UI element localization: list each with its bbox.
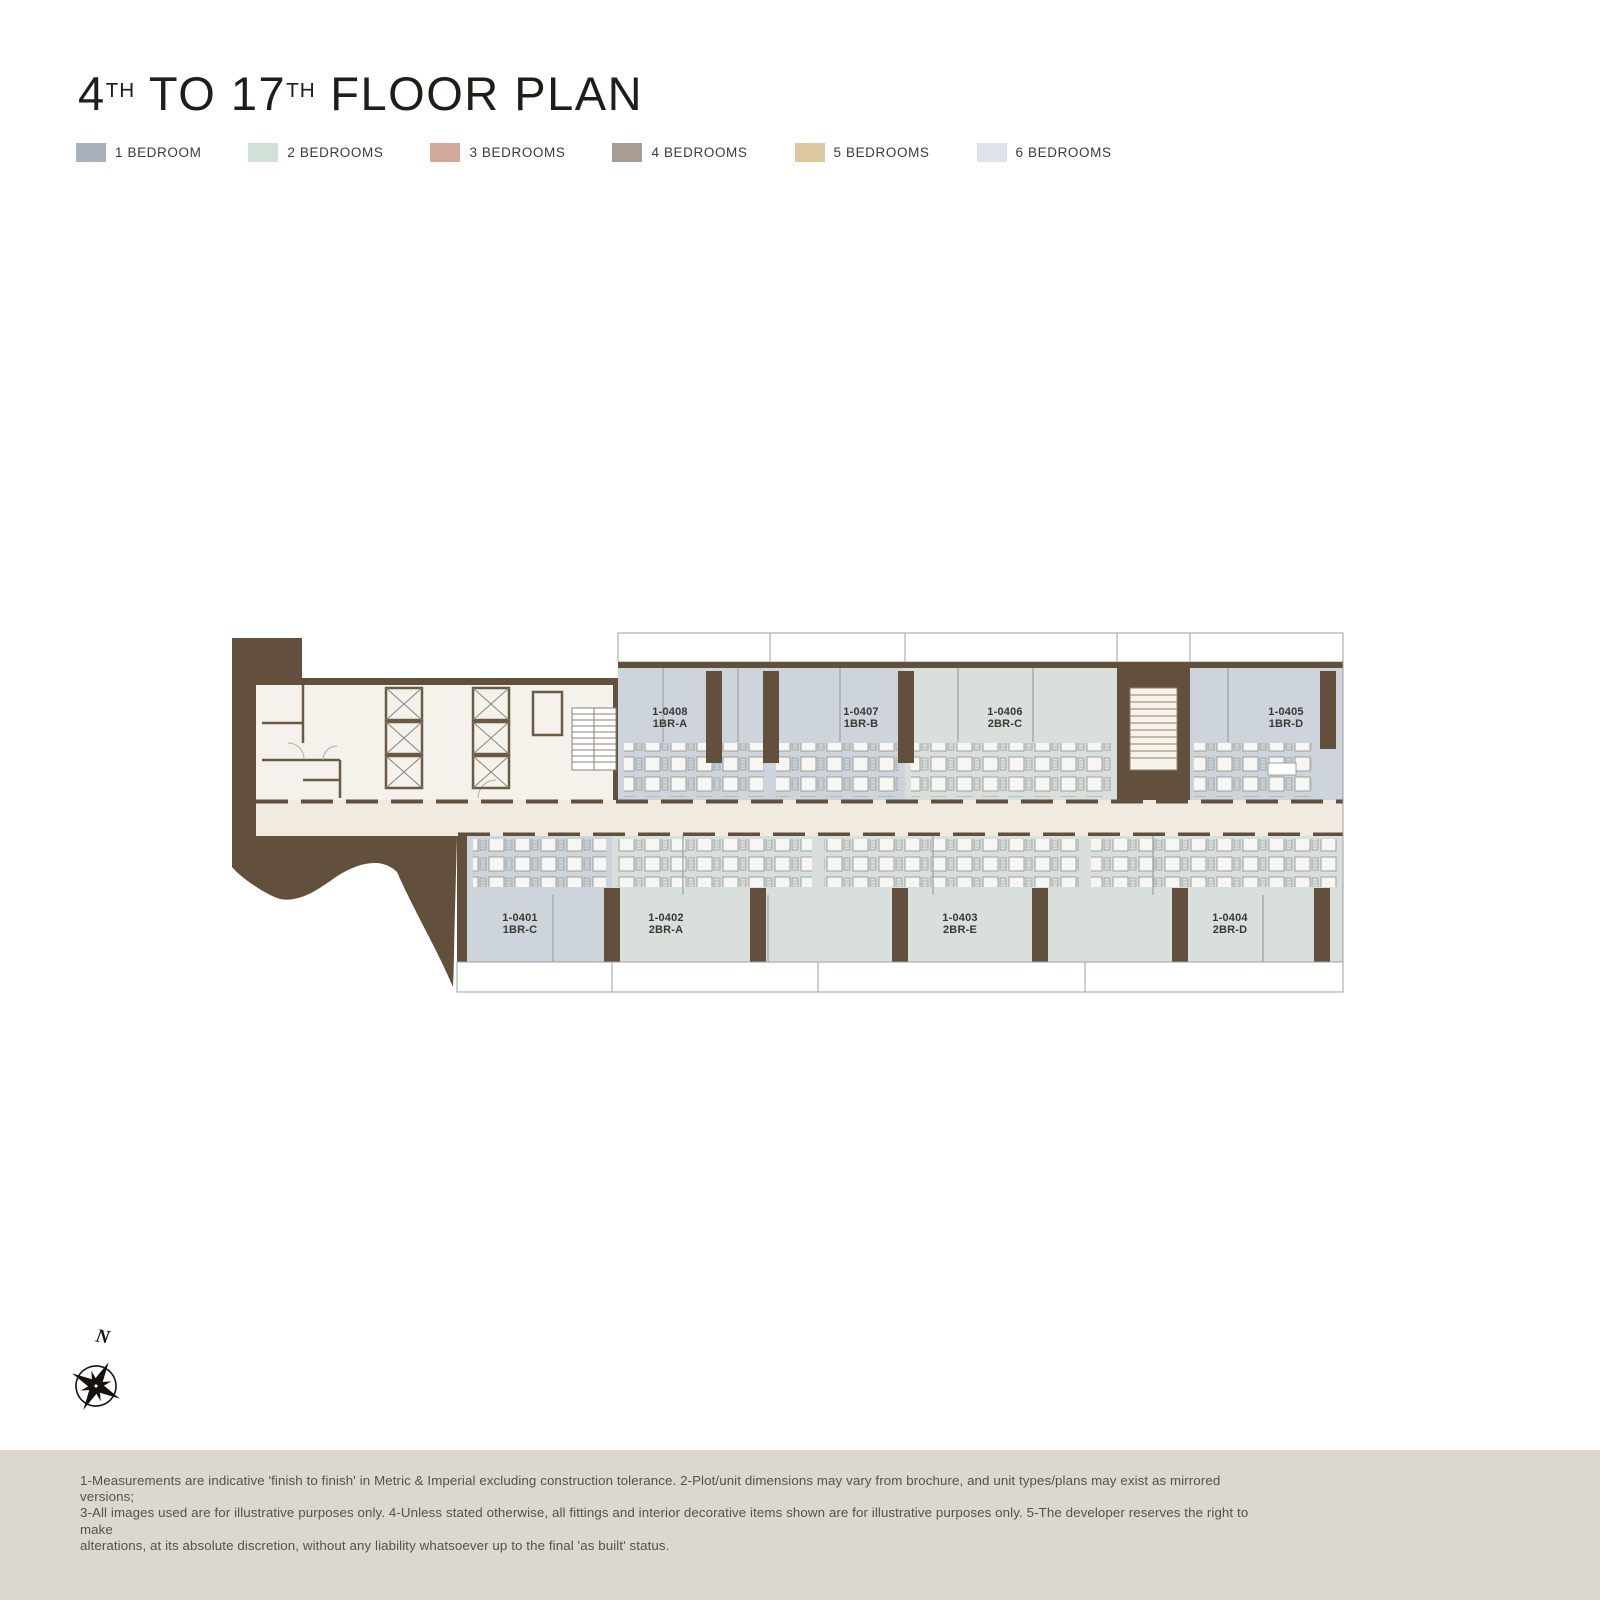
- unit-1-0402: 1-0402 2BR-A: [612, 836, 818, 962]
- title-part: 4: [78, 67, 106, 120]
- balcony-strip-bottom: [457, 962, 1343, 992]
- service-core: [256, 678, 620, 800]
- unit-id: 1-0402: [648, 912, 683, 924]
- legend-label: 2 BEDROOMS: [287, 145, 383, 160]
- compass-rose: N: [60, 1320, 140, 1420]
- title-superscript: TH: [106, 79, 136, 102]
- north-label: N: [93, 1325, 112, 1348]
- unit-id: 1-0403: [942, 912, 977, 924]
- legend-label: 1 BEDROOM: [115, 145, 201, 160]
- compass-star: [60, 1349, 133, 1420]
- legend-label: 5 BEDROOMS: [834, 145, 930, 160]
- legend-label: 3 BEDROOMS: [469, 145, 565, 160]
- brochure-page: 4TH TO 17TH FLOOR PLAN 1 BEDROOM 2 BEDRO…: [0, 0, 1600, 1600]
- unit-type: 1BR-C: [503, 924, 538, 936]
- legend-item-6-bedrooms: 6 BEDROOMS: [977, 143, 1112, 162]
- unit-id: 1-0404: [1212, 912, 1248, 924]
- legend-swatch-3br: [430, 143, 460, 162]
- unit-type: 2BR-D: [1213, 924, 1248, 936]
- legend-swatch-6br: [977, 143, 1007, 162]
- floor-plan: 1-0408 1BR-A 1-0407 1BR-B 1-0406 2BR-C: [228, 615, 1348, 1005]
- exterior-wall: [618, 662, 1343, 668]
- unit-type: 1BR-A: [653, 718, 688, 730]
- title-superscript: TH: [286, 79, 316, 102]
- unit-id: 1-0407: [843, 706, 878, 718]
- unit-1-0407: 1-0407 1BR-B: [770, 668, 905, 800]
- legend: 1 BEDROOM 2 BEDROOMS 3 BEDROOMS 4 BEDROO…: [76, 143, 1159, 162]
- legend-item-1-bedroom: 1 BEDROOM: [76, 143, 201, 162]
- unit-id: 1-0405: [1268, 706, 1303, 718]
- unit-1-0401: 1-0401 1BR-C: [457, 836, 612, 962]
- unit-type: 1BR-B: [844, 718, 879, 730]
- disclaimer-line: 3-All images used are for illustrative p…: [80, 1505, 1260, 1537]
- unit-1-0406: 1-0406 2BR-C: [905, 668, 1117, 800]
- unit-type: 1BR-D: [1269, 718, 1304, 730]
- title-part: FLOOR PLAN: [316, 67, 643, 120]
- unit-type: 2BR-C: [988, 718, 1023, 730]
- unit-type: 2BR-E: [943, 924, 977, 936]
- middle-stair-core: [1117, 668, 1190, 800]
- title-part: TO 17: [135, 67, 286, 120]
- floor-plan-drawing: 1-0408 1BR-A 1-0407 1BR-B 1-0406 2BR-C: [228, 615, 1348, 1005]
- legend-swatch-2br: [248, 143, 278, 162]
- unit-1-0408: 1-0408 1BR-A: [618, 668, 770, 800]
- unit-id: 1-0406: [987, 706, 1022, 718]
- disclaimer-line: 1-Measurements are indicative 'finish to…: [80, 1473, 1260, 1505]
- legend-label: 6 BEDROOMS: [1016, 145, 1112, 160]
- legend-item-3-bedrooms: 3 BEDROOMS: [430, 143, 565, 162]
- legend-swatch-1br: [76, 143, 106, 162]
- compass-drawing: N: [60, 1320, 140, 1420]
- legend-swatch-5br: [795, 143, 825, 162]
- balcony-strip-top: [618, 633, 1343, 662]
- unit-type: 2BR-A: [649, 924, 684, 936]
- legend-item-4-bedrooms: 4 BEDROOMS: [612, 143, 747, 162]
- legend-item-5-bedrooms: 5 BEDROOMS: [795, 143, 930, 162]
- unit-id: 1-0401: [502, 912, 537, 924]
- disclaimer-text: 1-Measurements are indicative 'finish to…: [80, 1473, 1260, 1554]
- footer-disclaimer: 1-Measurements are indicative 'finish to…: [0, 1450, 1600, 1600]
- disclaimer-line: alterations, at its absolute discretion,…: [80, 1538, 1260, 1554]
- legend-label: 4 BEDROOMS: [651, 145, 747, 160]
- legend-item-2-bedrooms: 2 BEDROOMS: [248, 143, 383, 162]
- unit-1-0404: 1-0404 2BR-D: [1085, 836, 1343, 962]
- unit-id: 1-0408: [652, 706, 687, 718]
- page-title: 4TH TO 17TH FLOOR PLAN: [78, 66, 643, 121]
- core-stair: [572, 708, 616, 770]
- corridor: [256, 800, 1343, 836]
- legend-swatch-4br: [612, 143, 642, 162]
